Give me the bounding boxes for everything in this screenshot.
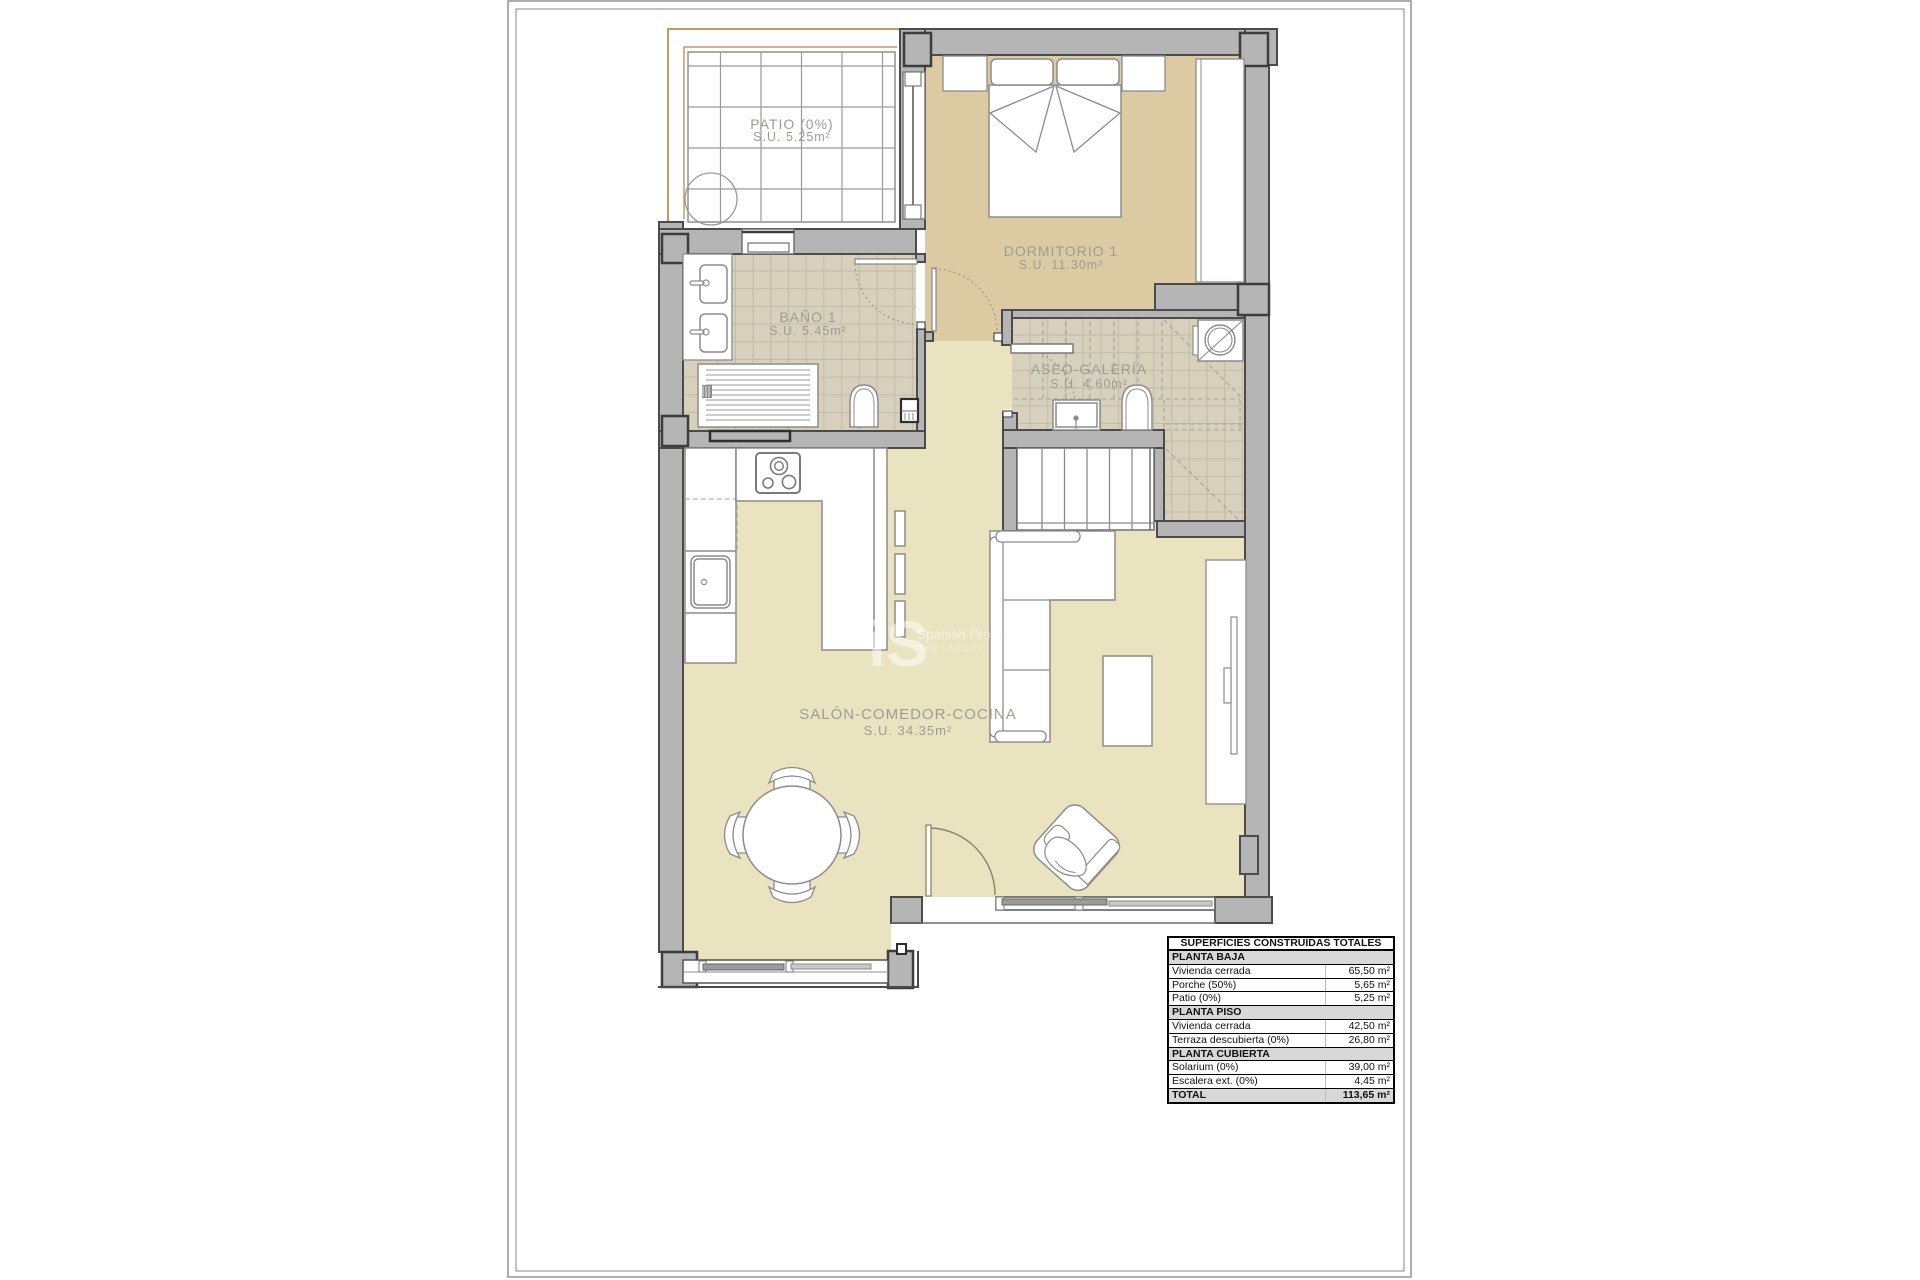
svg-text:BAÑO 1: BAÑO 1 <box>779 309 836 325</box>
svg-text:ASEO-GALERÍA: ASEO-GALERÍA <box>1031 361 1147 377</box>
svg-text:Spanish Property: Spanish Property <box>917 627 1021 642</box>
svg-text:S.U. 4.60m²: S.U. 4.60m² <box>1050 377 1128 391</box>
svg-text:S.U. 5.45m²: S.U. 5.45m² <box>769 324 847 338</box>
svg-text:DORMITORIO 1: DORMITORIO 1 <box>1004 243 1118 259</box>
svg-text:THE LARGEST SPANISH PORTAL: THE LARGEST SPANISH PORTAL <box>919 644 1081 653</box>
svg-text:S.U. 5.25m²: S.U. 5.25m² <box>753 130 831 144</box>
svg-text:SALÓN-COMEDOR-COCINA: SALÓN-COMEDOR-COCINA <box>799 706 1017 723</box>
svg-text:S.U. 34.35m²: S.U. 34.35m² <box>864 723 953 738</box>
svg-text:S.U. 11.30m²: S.U. 11.30m² <box>1019 258 1104 272</box>
